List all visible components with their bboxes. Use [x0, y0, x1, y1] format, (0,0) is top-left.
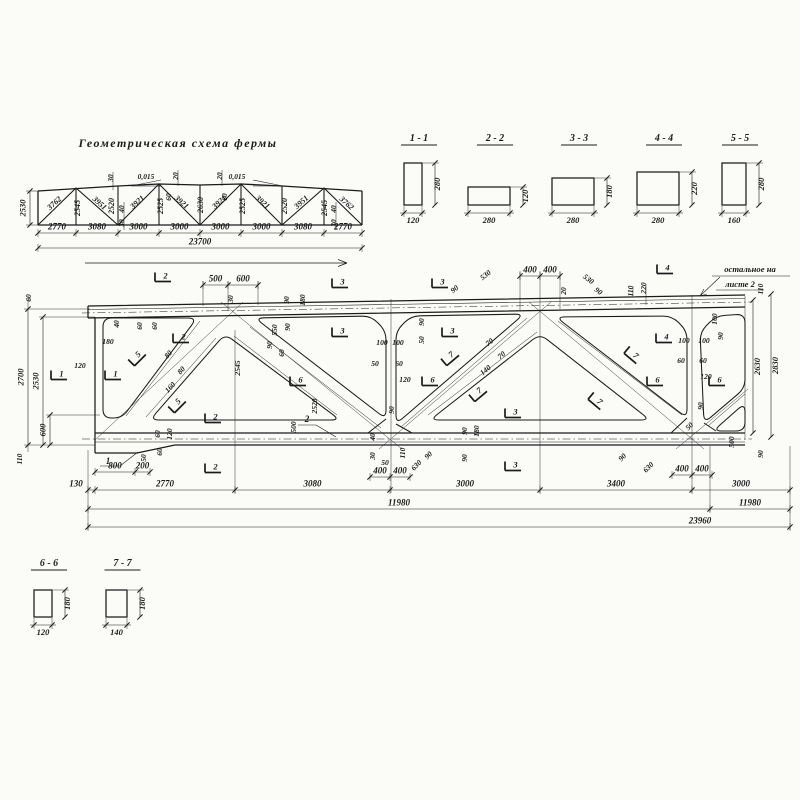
dim-label: 220	[639, 282, 648, 295]
dim-label: 110	[626, 285, 635, 296]
member-length-label: 3921	[253, 193, 272, 211]
dim-value: 2770	[155, 479, 175, 489]
section-flag: 7	[588, 391, 607, 410]
section-flag-number: 1	[59, 369, 63, 379]
section-width: 280	[651, 215, 666, 225]
dim-label: 60	[395, 359, 403, 368]
section-profile	[404, 163, 422, 205]
dim-label: 90	[460, 427, 469, 435]
section-width: 140	[110, 627, 124, 637]
dim-label: 160	[163, 380, 177, 395]
section-height: 280	[432, 177, 442, 192]
dim-value: 3000	[129, 222, 149, 232]
dim-label: 90	[387, 406, 396, 414]
dim-label: 90	[283, 323, 292, 331]
top-chord	[88, 295, 745, 318]
section-height: 220	[689, 181, 699, 196]
section-flag-number: 1	[113, 369, 117, 379]
section-flag: 4	[656, 332, 672, 343]
dim-value: 400	[694, 464, 709, 474]
dim-label: 30	[368, 452, 377, 461]
piece-mark: 2	[304, 414, 310, 424]
section-flag-number: 2	[212, 462, 218, 472]
section-flag: 7	[440, 347, 459, 366]
section-width: 120	[37, 627, 51, 637]
generated-annotations: 3762254539512520392125253921263039212525…	[15, 133, 793, 637]
scheme-title: Геометрическая схема фермы	[77, 136, 277, 150]
section-flag-number: 3	[339, 277, 345, 287]
section-height: 180	[604, 184, 614, 198]
section-flag-number: 2	[212, 412, 218, 422]
dim-value: 600	[38, 423, 48, 437]
section-height: 120	[520, 189, 530, 203]
section-flag: 6	[422, 375, 438, 386]
section-header: 2 - 2	[485, 133, 504, 144]
dim-label: 100	[392, 338, 404, 347]
dim-label: 60	[699, 356, 707, 365]
section-flag-number: 3	[449, 326, 455, 336]
dim-value: 200	[135, 461, 150, 471]
member-length-label: 3921	[172, 193, 191, 211]
section-flag: 2	[205, 462, 221, 473]
dim-label: 60	[277, 349, 286, 357]
dim-label: 70	[496, 349, 508, 361]
dim-label: 60	[24, 294, 33, 302]
dim-label: 110	[756, 283, 765, 294]
section-flag: 4	[657, 263, 673, 274]
section-flag: 5	[127, 347, 146, 366]
dim-label: 90	[449, 283, 461, 295]
dim-value: 3400	[606, 479, 626, 489]
dim-value: 23700	[188, 237, 212, 247]
dim-label: 80	[175, 364, 187, 376]
section-flag: 3	[332, 277, 348, 288]
dim-label: 0,015	[138, 172, 155, 181]
dim-label: 90	[460, 454, 469, 462]
member-length-label: 2520	[107, 198, 116, 215]
section-flag: 1	[51, 369, 67, 380]
section-flag: 3	[442, 326, 458, 337]
section-flag: 2	[205, 412, 221, 423]
dim-label: 60	[150, 322, 159, 330]
member-length-label: 2545	[73, 200, 82, 217]
dim-label: 40	[117, 205, 126, 214]
truss-working-drawing: Геометрическая схема фермы остальное на …	[0, 0, 800, 800]
dim-label: 90	[616, 451, 628, 463]
dim-label: 90	[756, 450, 765, 458]
dim-value: 400	[372, 466, 387, 476]
section-flag: 6	[647, 375, 663, 386]
member-length-label: 2520	[280, 198, 289, 215]
dim-value: 400	[522, 265, 537, 275]
section-width: 160	[728, 215, 742, 225]
dim-label: 120	[74, 361, 86, 370]
section-height: 180	[62, 596, 72, 610]
dim-label: 120	[700, 372, 712, 381]
dim-value: 3080	[293, 222, 313, 232]
dim-label: 30	[117, 219, 126, 228]
section-header: 6 - 6	[40, 558, 58, 569]
dim-label: 20	[559, 287, 568, 296]
dim-label: 630	[641, 460, 656, 475]
section-flag: 7	[468, 383, 487, 402]
section-header: 7 - 7	[113, 558, 132, 569]
dim-label: 90	[282, 296, 291, 304]
dim-value: 2830	[770, 356, 780, 375]
member-length-label: 3921	[128, 193, 147, 211]
section-profile	[106, 590, 127, 617]
dim-label: 60	[153, 430, 162, 438]
section-header: 3 - 3	[569, 133, 588, 144]
dim-value: 400	[392, 466, 407, 476]
note-line2: листе 2	[724, 279, 756, 289]
section-flag: 7	[624, 345, 643, 364]
dim-label: 30	[226, 295, 235, 304]
section-flag: 3	[505, 407, 521, 418]
dim-label: 180	[472, 425, 481, 437]
section-flag-number: 3	[512, 460, 518, 470]
dim-value: 2770	[47, 222, 67, 232]
section-flag: 2	[173, 332, 189, 343]
dim-value: 400	[542, 265, 557, 275]
dim-label: 90	[422, 449, 434, 461]
dim-value: 11980	[388, 498, 411, 508]
section-header: 5 - 5	[731, 133, 749, 144]
dim-value: 3000	[455, 479, 475, 489]
section-height: 180	[137, 596, 147, 610]
dim-label: 20	[215, 172, 224, 181]
section-flag: 2	[155, 271, 171, 282]
dim-label: 180	[102, 337, 114, 346]
dim-value: 800	[108, 461, 122, 471]
section-flag: 3	[432, 277, 448, 288]
dim-label: 100	[376, 338, 388, 347]
dim-label: 90	[265, 341, 274, 349]
dim-value: 3000	[211, 222, 231, 232]
dim-label: 110	[15, 453, 24, 464]
section-flag-number: 6	[655, 375, 660, 385]
dim-label: 100	[678, 336, 690, 345]
dim-label: 530	[478, 268, 493, 282]
section-header: 4 - 4	[654, 133, 673, 144]
note-line1: остальное на	[724, 264, 776, 274]
dim-label: 90	[716, 332, 725, 340]
dim-value: 2770	[333, 222, 353, 232]
dim-label: 40	[112, 320, 121, 329]
section-flag-number: 3	[439, 277, 445, 287]
diagonal-chamfers	[126, 318, 745, 428]
section-profile	[722, 163, 746, 205]
dim-label: 120	[399, 375, 411, 384]
dim-label: 530	[581, 272, 596, 286]
section-flag-number: 6	[298, 375, 303, 385]
section-flag-number: 2	[180, 332, 186, 342]
section-width: 280	[482, 215, 497, 225]
section-profile	[552, 178, 594, 205]
section-flag: 3	[505, 460, 521, 471]
dim-label: 2545	[233, 360, 242, 376]
member-length-label: 2630	[196, 197, 205, 214]
section-flag: 3	[332, 326, 348, 337]
section-flag-number: 3	[512, 407, 518, 417]
dim-value: 3000	[170, 222, 190, 232]
member-axes	[24, 271, 790, 530]
section-flag-number: 4	[664, 263, 669, 273]
blueprint-page: Геометрическая схема фермы остальное на …	[0, 0, 800, 800]
dim-value: 2630	[752, 357, 762, 376]
dim-label: 70	[484, 336, 496, 348]
dim-label: 60	[164, 193, 173, 201]
dim-label: 50	[417, 336, 426, 344]
dim-label: 60	[677, 356, 685, 365]
dim-label: 40	[368, 433, 377, 442]
section-width: 120	[407, 215, 421, 225]
piece-mark: 1	[106, 456, 111, 466]
section-width: 280	[566, 215, 581, 225]
dim-label: 110	[398, 447, 407, 458]
dim-label: 180	[298, 294, 307, 306]
dim-label: 50	[371, 359, 379, 368]
section-flag-number: 2	[162, 271, 168, 281]
dim-label: 30	[106, 174, 115, 183]
section-profile	[34, 590, 52, 617]
dim-label: 60	[135, 322, 144, 330]
section-profile	[468, 187, 510, 205]
member-length-label: 2525	[238, 198, 247, 215]
section-flag-number: 3	[339, 326, 345, 336]
dim-value: 500	[209, 274, 223, 284]
dim-value: 400	[674, 464, 689, 474]
dim-label: 90	[417, 318, 426, 326]
dim-label: 40	[329, 205, 338, 214]
dim-label: 2520	[310, 398, 319, 414]
truss-openings	[103, 314, 745, 431]
dim-label: 630	[409, 458, 424, 473]
dim-label: 60	[220, 193, 229, 201]
dim-label: 550	[270, 324, 279, 336]
dim-value: 3000	[731, 479, 751, 489]
section-flag-number: 4	[663, 332, 668, 342]
dim-value: 11980	[739, 498, 762, 508]
section-height: 280	[756, 177, 766, 192]
dim-label: 500	[289, 421, 298, 433]
dim-label: 90	[593, 285, 605, 297]
dim-label: 60	[155, 448, 164, 456]
section-profile	[637, 172, 679, 205]
dim-value: 2530	[31, 372, 41, 391]
dim-label: 20	[171, 172, 180, 181]
dim-label: 0,015	[229, 172, 246, 181]
member-length-label: 2545	[320, 200, 329, 217]
dim-value: 3080	[87, 222, 107, 232]
dim-label: 100	[710, 313, 719, 325]
section-header: 1 - 1	[410, 133, 428, 144]
dim-label: 500	[727, 436, 736, 448]
dim-value: 130	[69, 479, 83, 489]
section-flag: 1	[105, 369, 121, 380]
dim-label: 100	[698, 336, 710, 345]
section-flag-number: 6	[430, 375, 435, 385]
dim-value: 23960	[688, 516, 712, 526]
section-flag-number: 6	[717, 375, 722, 385]
dim-value: 3080	[303, 479, 323, 489]
dim-value: 3000	[252, 222, 272, 232]
dim-value: 2700	[16, 368, 26, 387]
dim-label: 50	[683, 420, 695, 432]
dim-value: 2530	[18, 199, 28, 218]
dim-label: 90	[696, 402, 705, 410]
section-flag: 5	[167, 394, 186, 413]
dim-label: 120	[165, 428, 174, 440]
dim-value: 600	[236, 274, 250, 284]
